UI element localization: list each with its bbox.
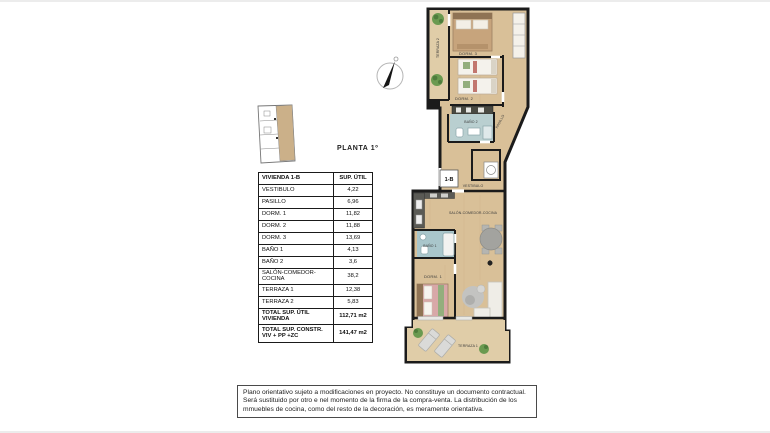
table-row: TERRAZA 25,83: [259, 296, 373, 308]
plant-icon: [479, 344, 489, 354]
desk-strip-dorm2: [452, 106, 493, 114]
plant-icon: [431, 74, 443, 86]
floor-plan: TERRAZA 2 DORM. 3: [360, 0, 538, 380]
total-label: TOTAL SUP. CONSTR. VIV + PP +ZC: [259, 324, 334, 342]
table-header-row: VIVIENDA 1-B SUP. ÚTIL: [259, 173, 373, 185]
key-plan-core: [274, 118, 276, 120]
row-label: DORM. 2: [259, 221, 334, 233]
label-vestibulo: VESTIBULO: [463, 184, 484, 188]
row-label: TERRAZA 1: [259, 284, 334, 296]
bed-dorm1: [417, 284, 448, 317]
washer-icon: [484, 162, 498, 178]
shower-icon: [483, 126, 492, 139]
unit-tag: 1-B: [440, 170, 458, 187]
total-label: TOTAL SUP. ÚTIL VIVIENDA: [259, 308, 334, 324]
key-plan-thumbnail: [250, 101, 302, 165]
bathtub-icon: [443, 233, 454, 256]
toilet-icon: [456, 128, 463, 137]
window: [418, 317, 443, 321]
door-gap: [454, 264, 457, 274]
door-gap: [452, 189, 464, 192]
table-total-constr-row: TOTAL SUP. CONSTR. VIV + PP +ZC141,47 m2: [259, 324, 373, 342]
bed-dorm3: [453, 13, 492, 51]
row-label: VESTIBULO: [259, 185, 334, 197]
pouf: [477, 285, 485, 293]
wardrobe-dorm3: [513, 13, 525, 58]
shaft: [429, 101, 440, 108]
area-table: VIVIENDA 1-B SUP. ÚTIL VESTIBULO4,22 PAS…: [258, 172, 373, 343]
table-row: BAÑO 23,6: [259, 257, 373, 269]
row-label: BAÑO 1: [259, 245, 334, 257]
row-label: DORM. 1: [259, 209, 334, 221]
door-gap: [480, 141, 490, 144]
door-gap: [491, 56, 500, 59]
bed-dorm2-a: [458, 59, 497, 75]
disclaimer-note: Plano orientativo sujeto a modificacione…: [237, 385, 537, 418]
table-row: VESTIBULO4,22: [259, 185, 373, 197]
label-terraza1: TERRAZA 1: [458, 344, 478, 348]
table-row: SALÓN-COMEDOR-COCINA38,2: [259, 269, 373, 285]
door-gap: [502, 92, 505, 102]
table-header-unit: VIVIENDA 1-B: [259, 173, 334, 185]
sliding-door: [456, 317, 472, 321]
table-row: DORM. 211,88: [259, 221, 373, 233]
dining-table: [480, 225, 502, 254]
table-row: PASILLO6,96: [259, 197, 373, 209]
row-label: PASILLO: [259, 197, 334, 209]
label-dorm2: DORM. 2: [455, 96, 474, 101]
plant-icon: [413, 328, 423, 338]
table-row: TERRAZA 112,38: [259, 284, 373, 296]
table-row: DORM. 313,69: [259, 233, 373, 245]
row-label: TERRAZA 2: [259, 296, 334, 308]
plant-icon: [432, 13, 444, 25]
label-dorm3: DORM. 3: [459, 51, 478, 56]
table-total-util-row: TOTAL SUP. ÚTIL VIVIENDA112,71 m2: [259, 308, 373, 324]
table-row: DORM. 111,82: [259, 209, 373, 221]
label-bano2: BAÑO 2: [464, 119, 477, 124]
plan-sheet: PLANTA 1º VIVIENDA 1-B SUP. ÚTIL VESTIBU…: [0, 0, 770, 433]
key-plan-core: [276, 137, 278, 139]
bed-dorm2-b: [458, 78, 497, 94]
label-terraza2: TERRAZA 2: [436, 38, 440, 58]
north-arrow-icon: [377, 57, 403, 89]
door-gap: [448, 14, 451, 26]
label-dorm1: DORM. 1: [424, 274, 443, 279]
table-row: BAÑO 14,13: [259, 245, 373, 257]
sink-icon: [420, 234, 426, 240]
label-bano1: BAÑO 1: [423, 243, 436, 248]
unit-tag-label: 1-B: [445, 177, 454, 183]
label-salon: SALÓN-COMEDOR-COCINA: [449, 210, 498, 215]
sink-icon: [468, 128, 480, 135]
row-label: SALÓN-COMEDOR-COCINA: [259, 269, 334, 285]
row-label: DORM. 3: [259, 233, 334, 245]
row-label: BAÑO 2: [259, 257, 334, 269]
